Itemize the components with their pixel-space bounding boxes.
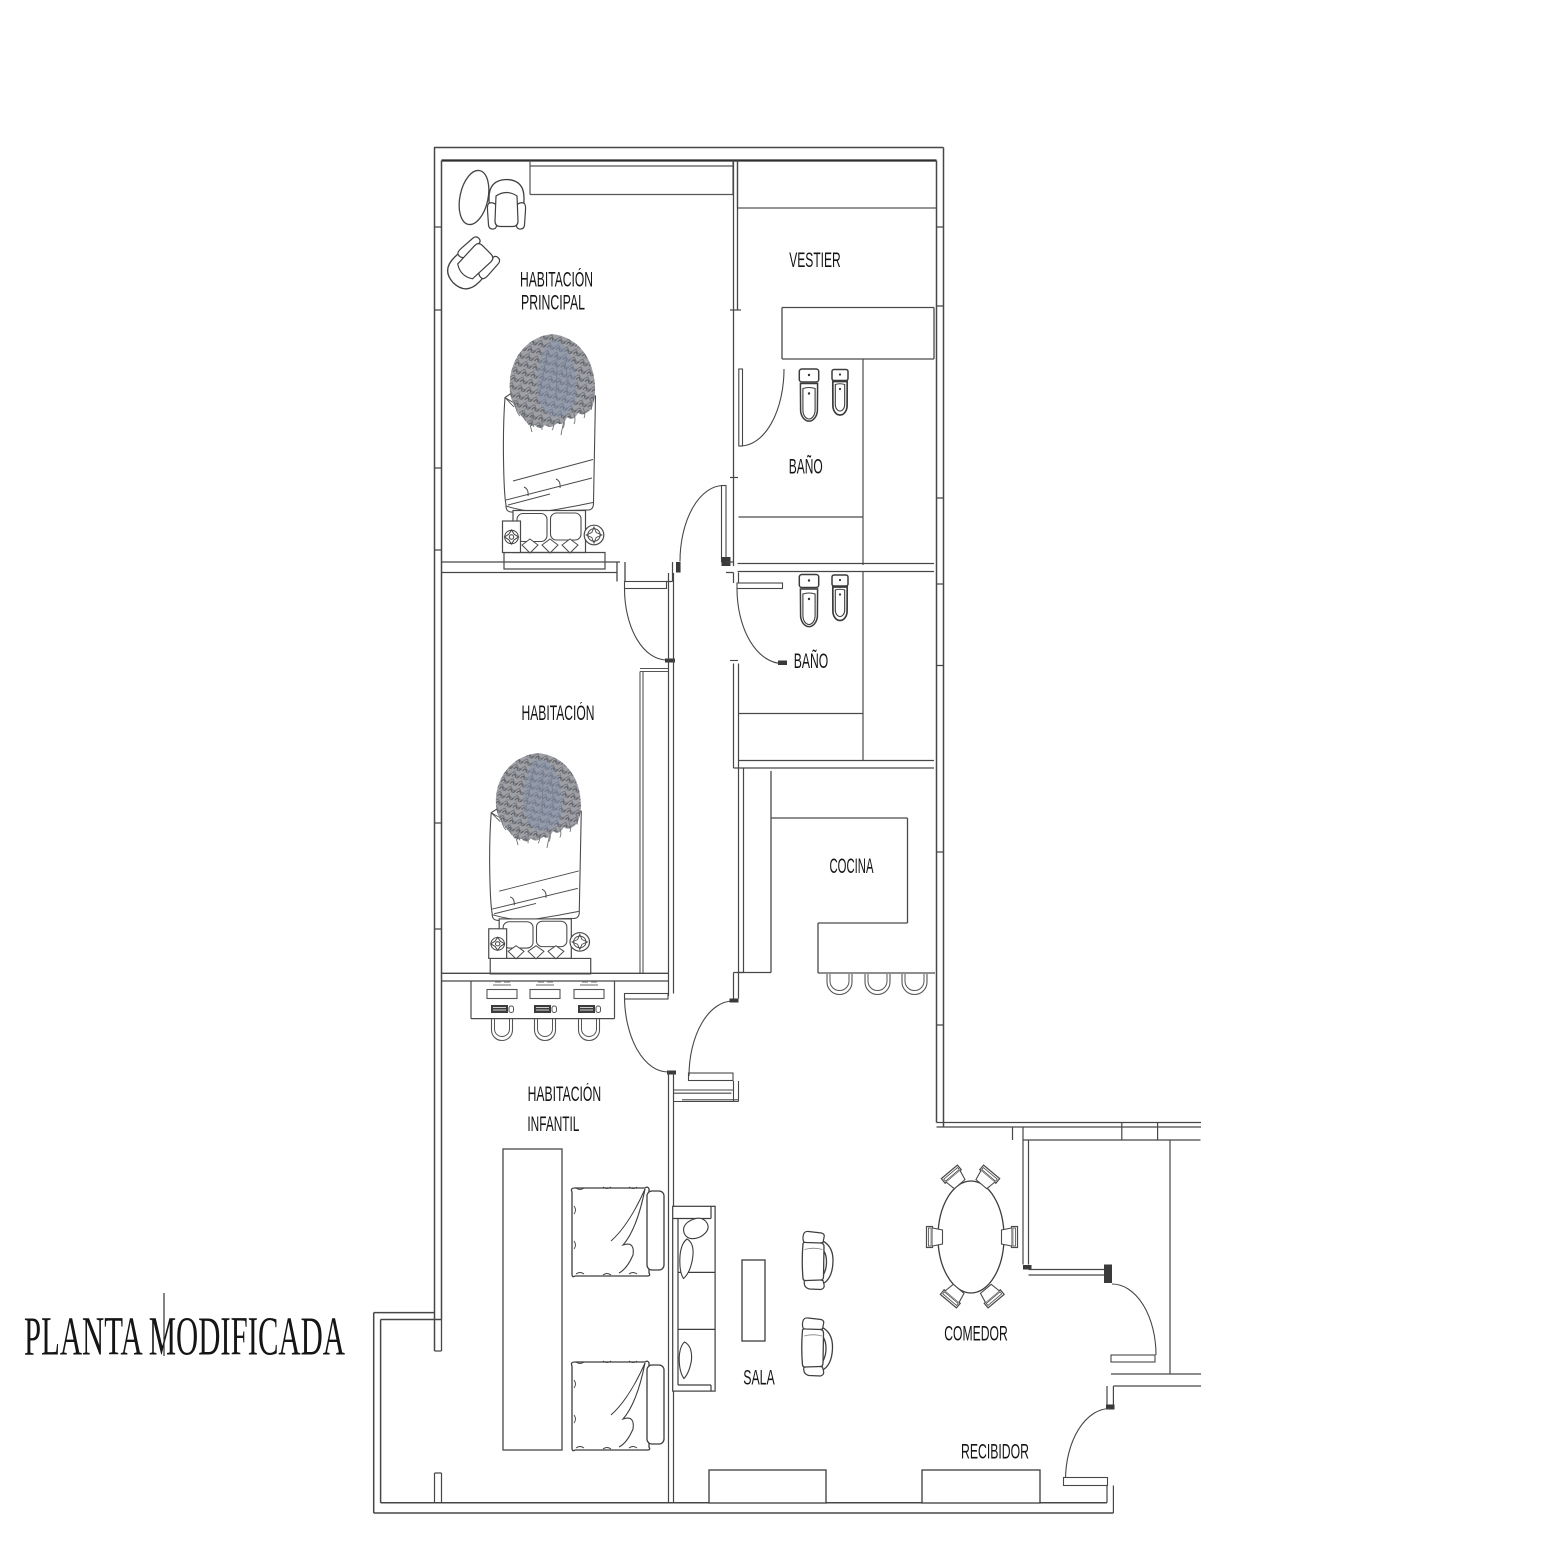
svg-text:HABITACIÓN: HABITACIÓN [522, 702, 595, 725]
svg-text:BAÑO: BAÑO [789, 455, 823, 479]
svg-text:SALA: SALA [743, 1367, 775, 1390]
svg-text:INFANTIL: INFANTIL [527, 1113, 579, 1136]
svg-text:HABITACIÓN: HABITACIÓN [528, 1083, 602, 1106]
svg-text:COCINA: COCINA [830, 855, 874, 878]
svg-text:PLANTA MODIFICADA: PLANTA MODIFICADA [24, 1306, 345, 1367]
svg-text:HABITACIÓN: HABITACIÓN [520, 269, 593, 292]
svg-text:COMEDOR: COMEDOR [944, 1323, 1008, 1346]
svg-text:RECIBIDOR: RECIBIDOR [961, 1441, 1029, 1464]
svg-text:BAÑO: BAÑO [794, 649, 829, 673]
svg-text:PRINCIPAL: PRINCIPAL [521, 292, 585, 315]
svg-text:VESTIER: VESTIER [789, 249, 841, 272]
